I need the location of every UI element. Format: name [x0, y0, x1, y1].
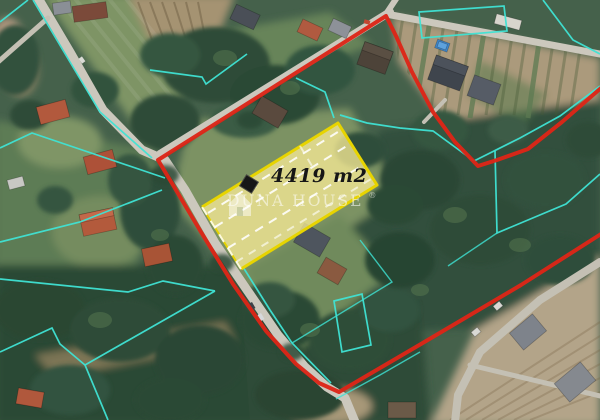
aerial-map: 4419 m2 DUNA HOUSE® [0, 0, 600, 420]
watermark: DUNA HOUSE® [227, 192, 376, 210]
area-label: 4419 m2 [271, 165, 367, 187]
duna-house-logo-icon [227, 192, 253, 218]
satellite-imagery [0, 0, 600, 420]
registered-trademark-symbol: ® [368, 191, 376, 200]
